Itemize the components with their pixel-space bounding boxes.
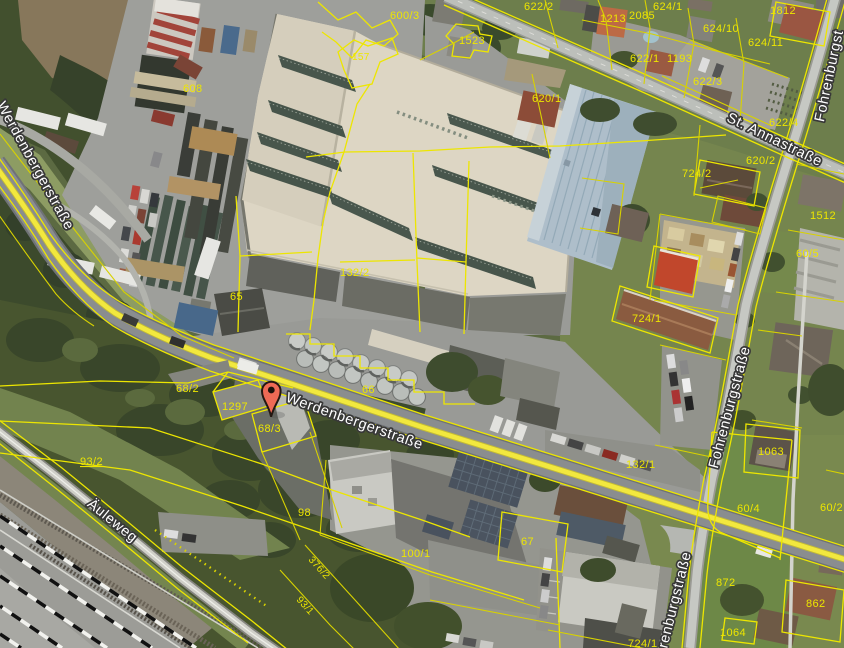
svg-text:157: 157 — [352, 52, 370, 63]
svg-text:620/2: 620/2 — [746, 155, 776, 167]
svg-text:68/3: 68/3 — [258, 423, 281, 435]
svg-text:2085: 2085 — [629, 10, 655, 22]
svg-text:132/2: 132/2 — [340, 267, 370, 279]
svg-text:624/11: 624/11 — [748, 37, 783, 49]
svg-text:100/1: 100/1 — [401, 548, 431, 560]
svg-text:622/1: 622/1 — [630, 53, 660, 65]
svg-text:1523: 1523 — [459, 35, 485, 47]
svg-text:132/1: 132/1 — [626, 459, 656, 471]
svg-text:608: 608 — [183, 83, 203, 95]
svg-text:1064: 1064 — [720, 627, 746, 639]
svg-text:724/1: 724/1 — [628, 638, 658, 648]
svg-text:1063: 1063 — [758, 446, 784, 458]
svg-text:67: 67 — [521, 536, 534, 548]
svg-text:1512: 1512 — [810, 210, 836, 222]
svg-text:624/10: 624/10 — [703, 23, 739, 35]
svg-text:600/3: 600/3 — [390, 10, 420, 22]
svg-text:724/2: 724/2 — [682, 168, 712, 180]
svg-text:68/2: 68/2 — [176, 383, 199, 395]
svg-text:93/2: 93/2 — [80, 456, 103, 468]
svg-text:620/1: 620/1 — [532, 93, 562, 105]
svg-text:66: 66 — [362, 384, 375, 396]
svg-text:60/5: 60/5 — [796, 248, 819, 260]
svg-text:60/4: 60/4 — [737, 503, 760, 515]
svg-text:1213: 1213 — [600, 13, 626, 25]
svg-text:1193: 1193 — [667, 53, 692, 65]
svg-text:65: 65 — [230, 291, 243, 303]
svg-text:98: 98 — [298, 507, 311, 519]
svg-text:1297: 1297 — [222, 401, 248, 413]
svg-text:724/1: 724/1 — [632, 313, 662, 325]
svg-text:1812: 1812 — [770, 5, 796, 17]
svg-text:622/4: 622/4 — [769, 117, 799, 129]
svg-text:60/2: 60/2 — [820, 502, 843, 514]
svg-text:622/3: 622/3 — [693, 76, 723, 88]
svg-text:872: 872 — [716, 577, 736, 589]
svg-text:624/1: 624/1 — [653, 1, 683, 13]
svg-text:622/2: 622/2 — [524, 1, 554, 13]
svg-text:862: 862 — [806, 598, 826, 610]
